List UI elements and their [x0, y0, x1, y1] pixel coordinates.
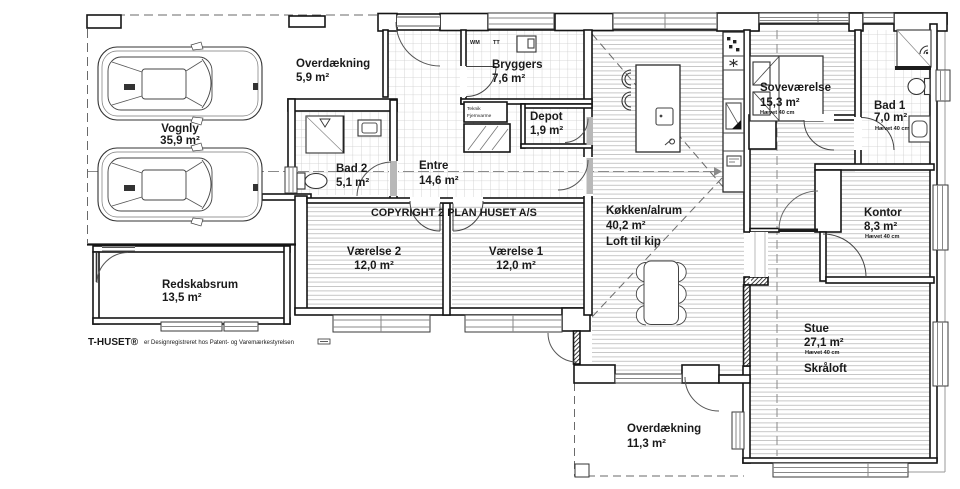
svg-text:Hævet 40 cm: Hævet 40 cm — [805, 350, 840, 356]
svg-text:40,2 m²: 40,2 m² — [606, 220, 646, 232]
svg-text:12,0 m²: 12,0 m² — [496, 260, 536, 272]
svg-text:Loft til kip: Loft til kip — [606, 236, 661, 248]
svg-text:7,6 m²: 7,6 m² — [492, 73, 525, 85]
svg-text:Bad 2: Bad 2 — [336, 163, 367, 175]
svg-text:Vognly: Vognly — [161, 123, 199, 135]
svg-text:14,6 m²: 14,6 m² — [419, 175, 459, 187]
svg-text:5,9 m²: 5,9 m² — [296, 72, 329, 84]
svg-text:Køkken/alrum: Køkken/alrum — [606, 205, 682, 217]
svg-text:WM: WM — [470, 40, 480, 46]
svg-text:Værelse 2: Værelse 2 — [347, 246, 401, 258]
svg-text:11,3 m²: 11,3 m² — [627, 438, 666, 450]
svg-text:5,1 m²: 5,1 m² — [336, 177, 369, 189]
svg-text:12,0 m²: 12,0 m² — [354, 260, 394, 272]
svg-text:Stue: Stue — [804, 323, 829, 335]
svg-text:27,1 m²: 27,1 m² — [804, 337, 844, 349]
svg-text:13,5 m²: 13,5 m² — [162, 292, 202, 304]
svg-text:35,9 m²: 35,9 m² — [160, 135, 200, 147]
svg-text:Hævet 40 cm: Hævet 40 cm — [865, 234, 900, 240]
svg-text:Hævet 40 cm: Hævet 40 cm — [760, 110, 795, 116]
svg-text:8,3 m²: 8,3 m² — [864, 221, 897, 233]
svg-text:7,0 m²: 7,0 m² — [874, 112, 907, 124]
svg-text:Kontor: Kontor — [864, 207, 902, 219]
svg-text:Værelse 1: Værelse 1 — [489, 246, 544, 258]
svg-text:TT: TT — [493, 40, 500, 46]
svg-text:Redskabsrum: Redskabsrum — [162, 279, 238, 291]
svg-text:Teknik: Teknik — [467, 106, 481, 112]
svg-text:Hævet 40 cm: Hævet 40 cm — [875, 126, 910, 132]
svg-text:er Designregistreret hos Paten: er Designregistreret hos Patent- og Vare… — [144, 340, 294, 346]
svg-text:Overdækning: Overdækning — [627, 423, 701, 435]
svg-text:Bad 1: Bad 1 — [874, 100, 906, 112]
svg-text:Depot: Depot — [530, 111, 563, 123]
svg-text:COPYRIGHT 2 PLAN HUSET A/S: COPYRIGHT 2 PLAN HUSET A/S — [371, 207, 537, 219]
svg-text:Overdækning: Overdækning — [296, 58, 370, 70]
svg-text:1,9 m²: 1,9 m² — [530, 125, 563, 137]
svg-text:Fjernvarme: Fjernvarme — [467, 113, 492, 119]
svg-text:15,3 m²: 15,3 m² — [760, 97, 800, 109]
svg-text:T-HUSET®: T-HUSET® — [88, 337, 139, 348]
svg-text:Bryggers: Bryggers — [492, 59, 543, 71]
svg-text:Skråloft: Skråloft — [804, 363, 847, 375]
svg-text:Entre: Entre — [419, 160, 448, 172]
svg-text:Soveværelse: Soveværelse — [760, 82, 831, 94]
